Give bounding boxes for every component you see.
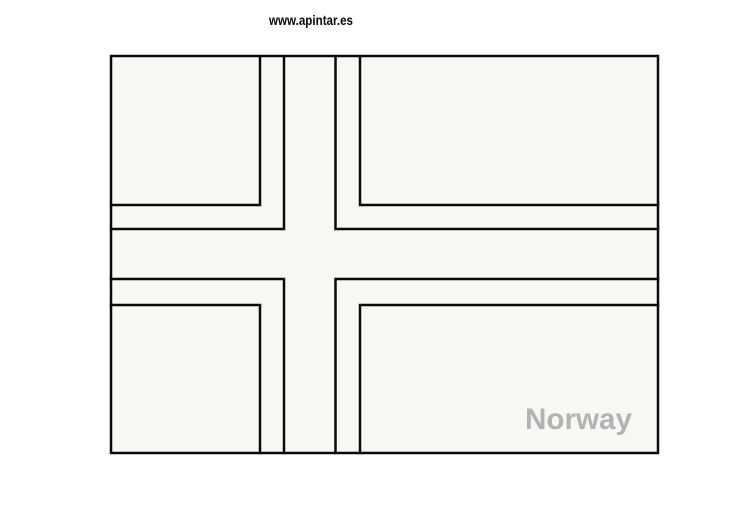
svg-text:Norway: Norway: [525, 403, 632, 436]
svg-text:www.apintar.es: www.apintar.es: [268, 12, 353, 28]
